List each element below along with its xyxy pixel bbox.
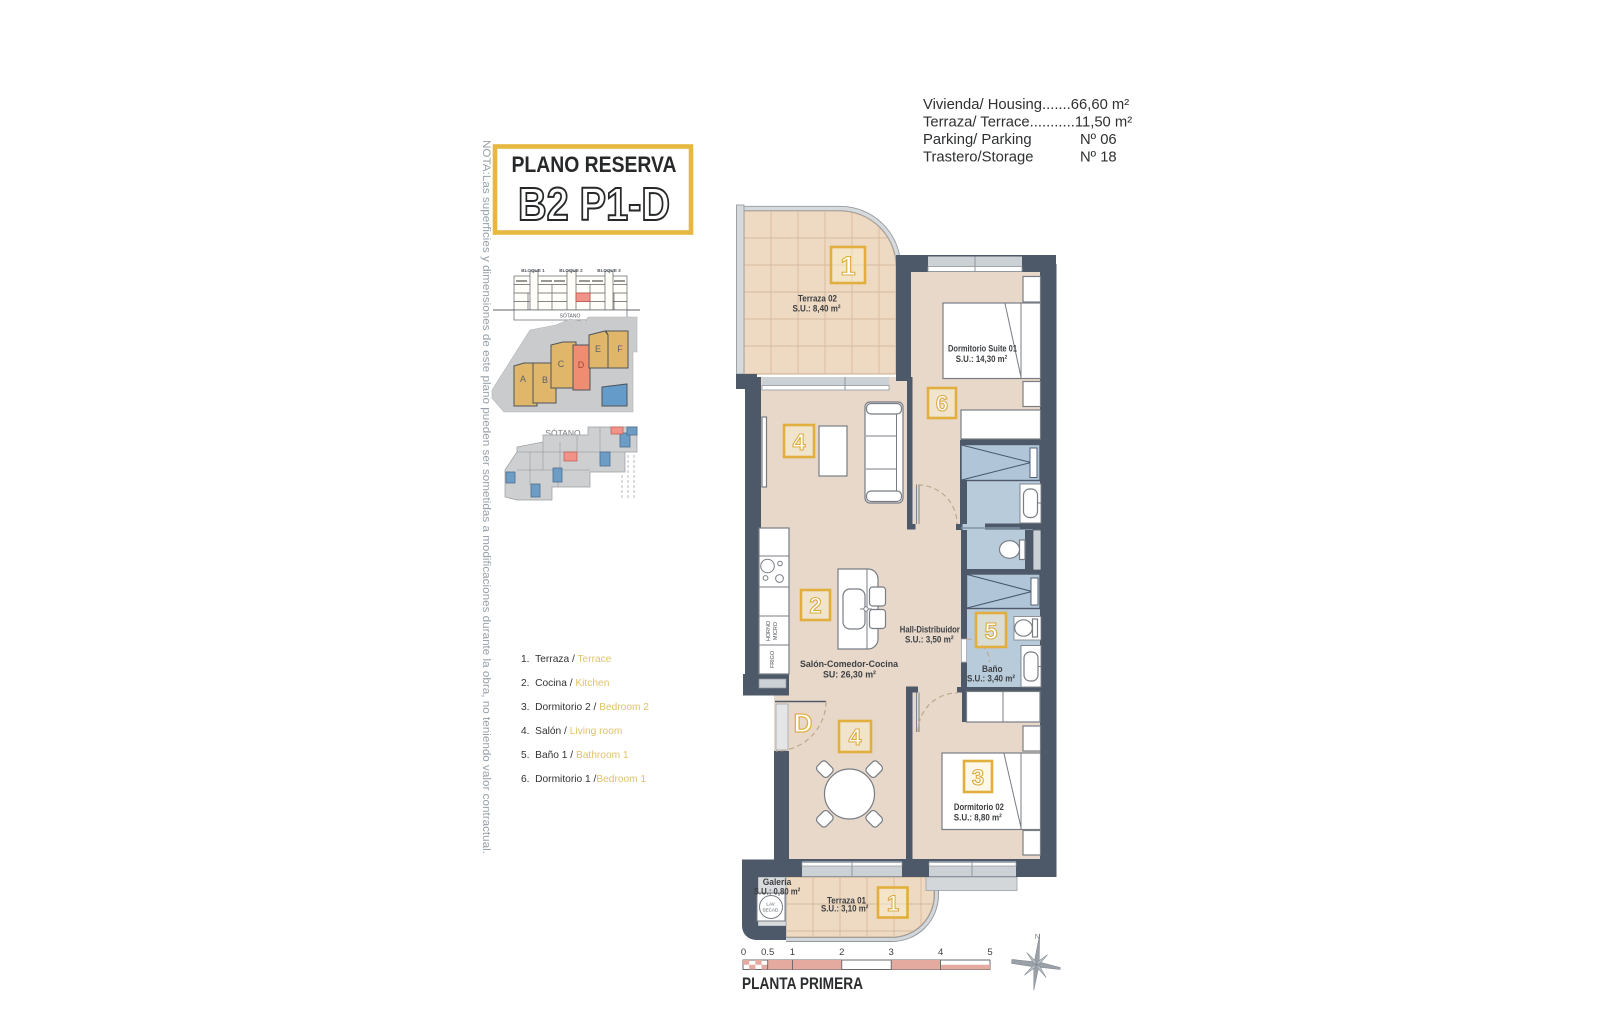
svg-text:Terraza/ Terrace...........11,: Terraza/ Terrace...........11,50 m² [923, 115, 1132, 131]
svg-text:5: 5 [987, 947, 992, 958]
svg-text:Parking/ Parking: Parking/ Parking [923, 132, 1032, 148]
svg-text:4: 4 [849, 724, 862, 750]
svg-text:S.U.: 8,40 m²: S.U.: 8,40 m² [793, 303, 841, 314]
svg-text:D: D [794, 708, 813, 738]
svg-text:MICRO: MICRO [773, 622, 779, 640]
svg-text:3. Dormitorio 2 / Bedroom 2: 3. Dormitorio 2 / Bedroom 2 [521, 702, 649, 713]
svg-text:C: C [558, 359, 565, 369]
svg-text:6. Dormitorio 1 /Bedroom 1: 6. Dormitorio 1 /Bedroom 1 [521, 774, 646, 785]
svg-text:0.5: 0.5 [761, 947, 774, 958]
svg-text:2. Cocina / Kitchen: 2. Cocina / Kitchen [521, 678, 609, 689]
svg-text:1: 1 [840, 251, 855, 281]
svg-text:5: 5 [985, 618, 998, 644]
svg-text:PLANTA PRIMERA: PLANTA PRIMERA [742, 975, 863, 993]
svg-text:S.U.: 0,80 m²: S.U.: 0,80 m² [754, 885, 801, 896]
svg-text:6: 6 [936, 391, 948, 416]
svg-text:S.U.: 3,10 m²: S.U.: 3,10 m² [821, 903, 869, 914]
svg-text:4: 4 [938, 947, 943, 958]
svg-text:SU: 26,30 m²: SU: 26,30 m² [823, 669, 876, 680]
svg-text:LAV.: LAV. [766, 902, 775, 907]
svg-text:S.U.: 14,30 m²: S.U.: 14,30 m² [956, 353, 1008, 364]
svg-text:0: 0 [741, 947, 746, 958]
svg-text:Dormitorio 02: Dormitorio 02 [954, 801, 1004, 812]
svg-text:B2 P1-D: B2 P1-D [518, 178, 670, 230]
svg-text:4. Salón / Living room: 4. Salón / Living room [521, 726, 622, 737]
svg-text:1: 1 [790, 947, 795, 958]
svg-text:NOTA:Las superficies y dimensi: NOTA:Las superficies y dimensiones de es… [480, 140, 492, 854]
svg-text:N: N [1035, 932, 1040, 941]
svg-text:A: A [520, 374, 526, 384]
svg-text:Salón-Comedor-Cocina: Salón-Comedor-Cocina [800, 658, 899, 669]
svg-text:BLOQUE 2: BLOQUE 2 [559, 268, 583, 273]
svg-text:E: E [595, 344, 601, 354]
svg-text:BLOQUE 1: BLOQUE 1 [521, 268, 545, 273]
svg-text:SECAD.: SECAD. [762, 908, 779, 913]
svg-text:3: 3 [972, 765, 984, 790]
svg-text:B: B [542, 375, 548, 385]
svg-text:Vivienda/ Housing.......66,60: Vivienda/ Housing.......66,60 m² [923, 97, 1129, 113]
svg-text:FRIGO: FRIGO [770, 651, 776, 668]
svg-text:PLANO RESERVA: PLANO RESERVA [512, 152, 677, 177]
svg-text:2: 2 [839, 947, 844, 958]
svg-text:S.U.: 3,40 m²: S.U.: 3,40 m² [967, 673, 1015, 684]
svg-text:3: 3 [889, 947, 894, 958]
svg-text:1. Terraza / Terrace: 1. Terraza / Terrace [521, 654, 612, 665]
svg-text:5. Baño 1 / Bathroom 1: 5. Baño 1 / Bathroom 1 [521, 750, 629, 761]
svg-text:1: 1 [887, 891, 899, 916]
svg-text:D: D [578, 360, 585, 370]
svg-text:4: 4 [793, 429, 806, 455]
svg-text:S.U.: 3,50 m²: S.U.: 3,50 m² [905, 634, 954, 645]
svg-text:BLOQUE 3: BLOQUE 3 [597, 268, 621, 273]
svg-text:F: F [617, 344, 623, 354]
svg-text:Nº 06: Nº 06 [1080, 132, 1117, 148]
svg-text:Trastero/Storage: Trastero/Storage [923, 150, 1033, 166]
svg-text:S.U.: 8,80 m²: S.U.: 8,80 m² [954, 812, 1002, 823]
svg-text:SÓTANO: SÓTANO [560, 313, 581, 320]
svg-text:2: 2 [809, 593, 821, 618]
svg-text:Nº 18: Nº 18 [1080, 150, 1117, 166]
svg-text:HORNO: HORNO [766, 621, 772, 641]
